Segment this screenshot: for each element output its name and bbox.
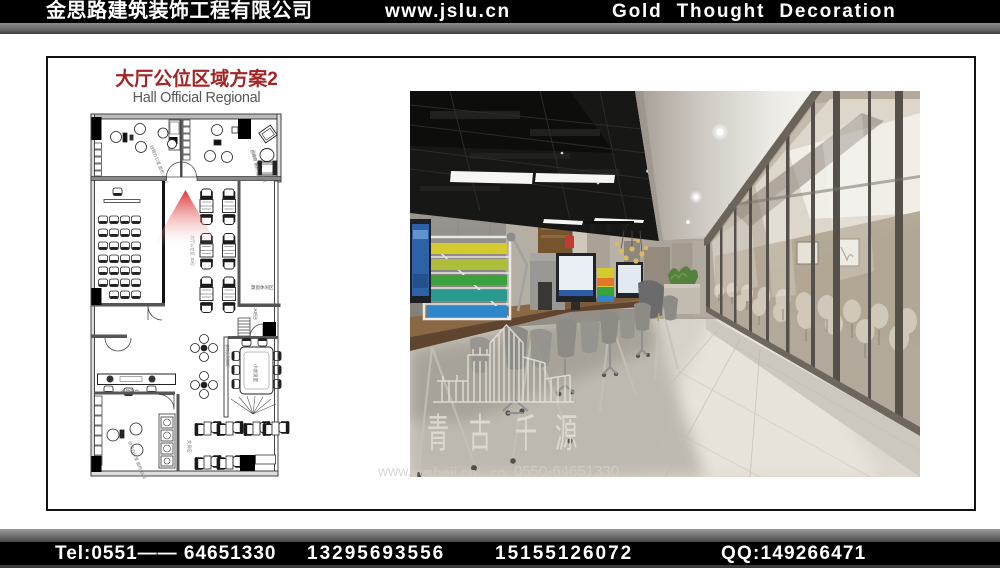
svg-text:cn: cn: [490, 465, 506, 477]
svg-text:千: 千: [515, 411, 537, 455]
svg-text:源: 源: [555, 411, 577, 455]
svg-text:水吧台: 水吧台: [253, 308, 259, 320]
svg-text:古: 古: [469, 411, 491, 455]
svg-text:装饰屏风隔断: 装饰屏风隔断: [225, 344, 230, 367]
svg-text:文员区: 文员区: [186, 440, 193, 453]
svg-text:gysheji.cn: gysheji.cn: [410, 465, 477, 477]
svg-text:小会议室: 小会议室: [252, 364, 259, 382]
svg-text:青: 青: [427, 411, 449, 455]
svg-text:0550-64651330: 0550-64651330: [514, 463, 619, 477]
svg-text:飘窗休闲区: 飘窗休闲区: [251, 284, 274, 291]
